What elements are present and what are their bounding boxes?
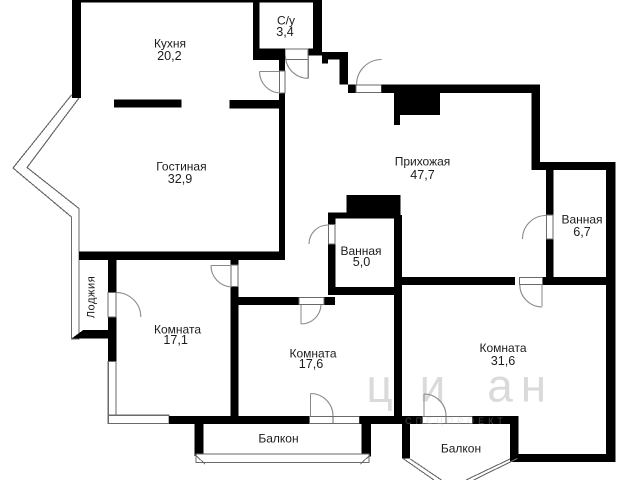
svg-text:Комната: Комната: [480, 341, 527, 355]
svg-text:Прихожая: Прихожая: [395, 155, 451, 169]
svg-text:32,9: 32,9: [168, 172, 193, 186]
svg-text:Кухня: Кухня: [154, 36, 186, 50]
svg-text:20,2: 20,2: [157, 49, 182, 63]
svg-text:17,6: 17,6: [299, 357, 324, 371]
svg-text:3,4: 3,4: [276, 25, 294, 39]
svg-text:17,1: 17,1: [163, 333, 188, 347]
svg-text:6,7: 6,7: [573, 225, 591, 239]
svg-text:Лоджия: Лоджия: [86, 276, 98, 319]
svg-text:Балкон: Балкон: [258, 431, 298, 445]
svg-text:5,0: 5,0: [353, 255, 371, 269]
svg-text:Балкон: Балкон: [441, 441, 481, 455]
svg-text:СПЕЦПРОЕКТ: СПЕЦПРОЕКТ: [405, 416, 507, 426]
svg-text:31,6: 31,6: [491, 354, 516, 368]
svg-text:47,7: 47,7: [410, 168, 435, 182]
